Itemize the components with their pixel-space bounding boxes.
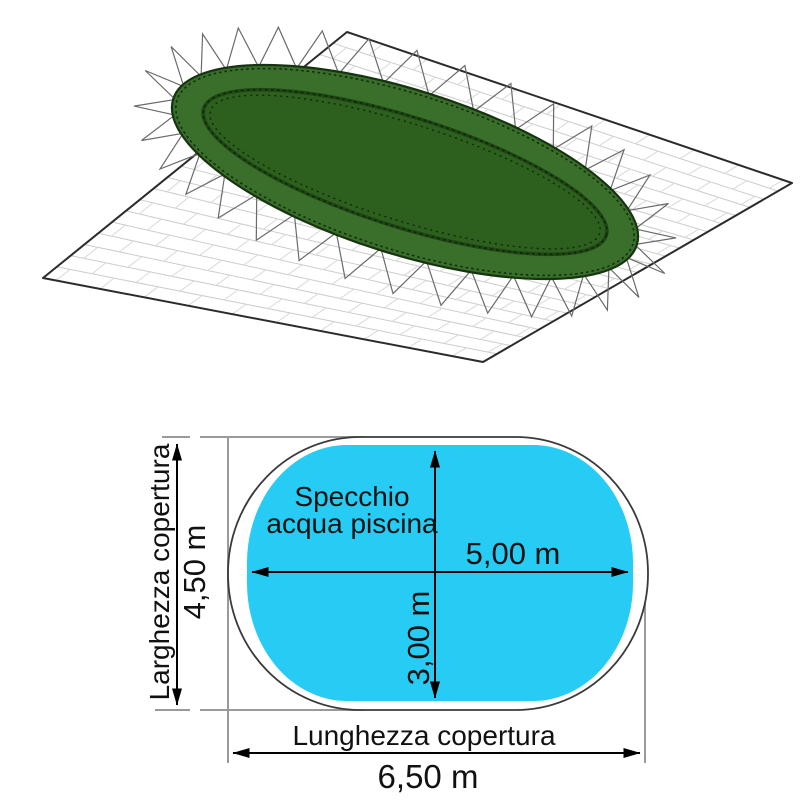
pool-width-value: 3,00 m xyxy=(401,591,436,686)
pool-length-value: 5,00 m xyxy=(466,536,561,571)
cover-length-value: 6,50 m xyxy=(378,758,479,795)
pool-cover-product-diagram: Specchio acqua piscina 5,00 m 3,00 m Lar… xyxy=(0,0,800,800)
cover-width-value: 4,50 m xyxy=(177,525,212,620)
cover-dimension-diagram: Specchio acqua piscina 5,00 m 3,00 m Lar… xyxy=(144,437,648,795)
cover-length-label: Lunghezza copertura xyxy=(292,720,556,751)
pool-cover-scene: Specchio acqua piscina 5,00 m 3,00 m Lar… xyxy=(0,0,800,800)
pool-surface-label-line2: acqua piscina xyxy=(266,508,438,539)
cover-3d-illustration xyxy=(43,21,792,362)
cover-width-label: Larghezza copertura xyxy=(144,443,175,700)
